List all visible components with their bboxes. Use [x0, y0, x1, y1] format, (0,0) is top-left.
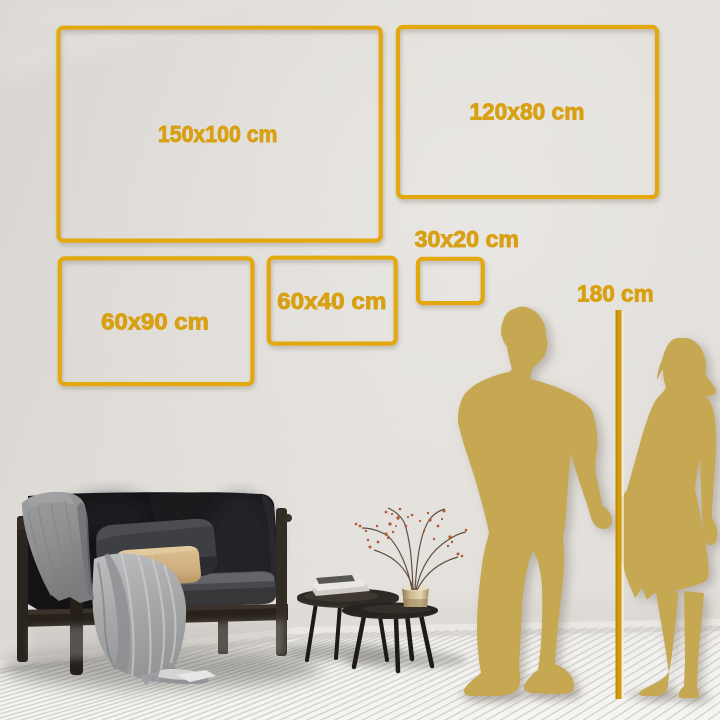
svg-text:60x90 cm: 60x90 cm	[101, 309, 209, 335]
svg-text:30x20 cm: 30x20 cm	[415, 226, 519, 252]
svg-text:120x80 cm: 120x80 cm	[469, 98, 584, 124]
svg-text:150x100 cm: 150x100 cm	[158, 121, 278, 147]
svg-text:180 cm: 180 cm	[577, 281, 654, 307]
svg-text:60x40 cm: 60x40 cm	[277, 288, 386, 314]
